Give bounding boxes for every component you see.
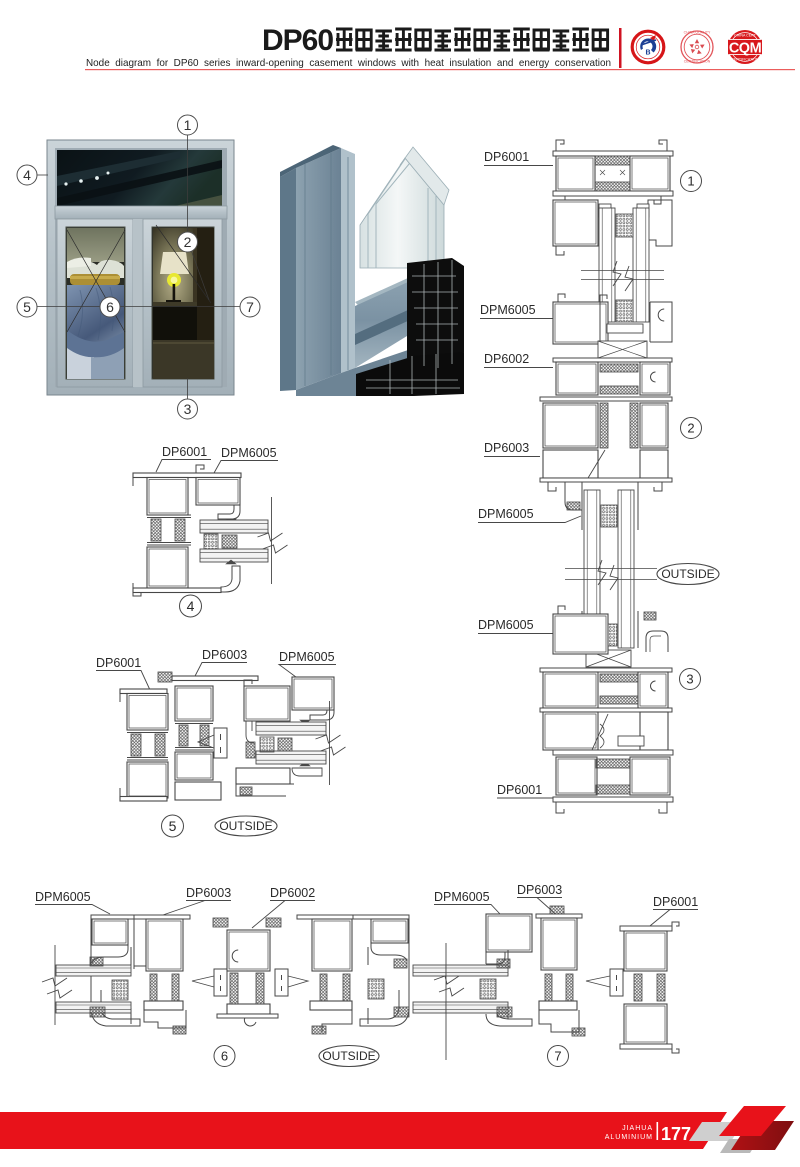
svg-text:DPM6005: DPM6005 <box>478 507 534 521</box>
svg-text:DPM6005: DPM6005 <box>480 303 536 317</box>
svg-text:4: 4 <box>23 167 31 183</box>
svg-text:DPM6005: DPM6005 <box>279 650 335 664</box>
svg-text:3: 3 <box>686 672 693 687</box>
svg-text:CHINA QUALITY: CHINA QUALITY <box>684 31 711 35</box>
svg-text:177: 177 <box>661 1124 691 1144</box>
svg-text:OUTSIDE: OUTSIDE <box>219 819 272 833</box>
svg-text:2: 2 <box>687 421 694 436</box>
svg-text:DP6002: DP6002 <box>270 886 315 900</box>
svg-text:DP6001: DP6001 <box>497 783 542 797</box>
svg-text:DP6001: DP6001 <box>162 445 207 459</box>
svg-text:Node diagram for DP60 seri: Node diagram for DP60 series inward-open… <box>86 58 611 69</box>
svg-text:DPM6005: DPM6005 <box>434 890 490 904</box>
svg-text:DP6001: DP6001 <box>484 150 529 164</box>
svg-text:2: 2 <box>184 234 192 250</box>
svg-text:DPM6005: DPM6005 <box>35 890 91 904</box>
svg-text:JIAHUA: JIAHUA <box>622 1125 653 1132</box>
svg-text:DP60: DP60 <box>262 24 333 57</box>
svg-text:3: 3 <box>184 401 192 417</box>
svg-text:7: 7 <box>246 299 254 315</box>
svg-text:DPM6005: DPM6005 <box>478 618 534 632</box>
svg-text:B: B <box>645 50 650 57</box>
svg-text:ALUMINIUM: ALUMINIUM <box>605 1134 653 1141</box>
svg-text:5: 5 <box>23 299 31 315</box>
svg-text:DP6001: DP6001 <box>653 895 698 909</box>
svg-text:DP6003: DP6003 <box>484 441 529 455</box>
svg-text:1: 1 <box>687 174 694 189</box>
svg-text:DP6003: DP6003 <box>202 648 247 662</box>
svg-text:CERTIFICATION: CERTIFICATION <box>684 60 711 64</box>
svg-text:6: 6 <box>221 1049 228 1064</box>
svg-text:CHINA CERT: CHINA CERT <box>734 34 757 38</box>
svg-text:DP6003: DP6003 <box>517 883 562 897</box>
svg-text:5: 5 <box>169 818 177 834</box>
svg-text:1: 1 <box>184 117 192 133</box>
svg-text:CQM: CQM <box>729 40 762 56</box>
svg-text:DP6003: DP6003 <box>186 886 231 900</box>
svg-text:DP6001: DP6001 <box>96 656 141 670</box>
svg-text:7: 7 <box>554 1049 561 1064</box>
svg-text:OUTSIDE: OUTSIDE <box>661 567 714 581</box>
svg-text:CERTIFICATION: CERTIFICATION <box>731 58 759 62</box>
svg-text:4: 4 <box>187 598 195 614</box>
svg-text:OUTSIDE: OUTSIDE <box>322 1049 375 1063</box>
svg-text:DPM6005: DPM6005 <box>221 446 277 460</box>
svg-text:6: 6 <box>106 299 114 315</box>
svg-text:DP6002: DP6002 <box>484 352 529 366</box>
